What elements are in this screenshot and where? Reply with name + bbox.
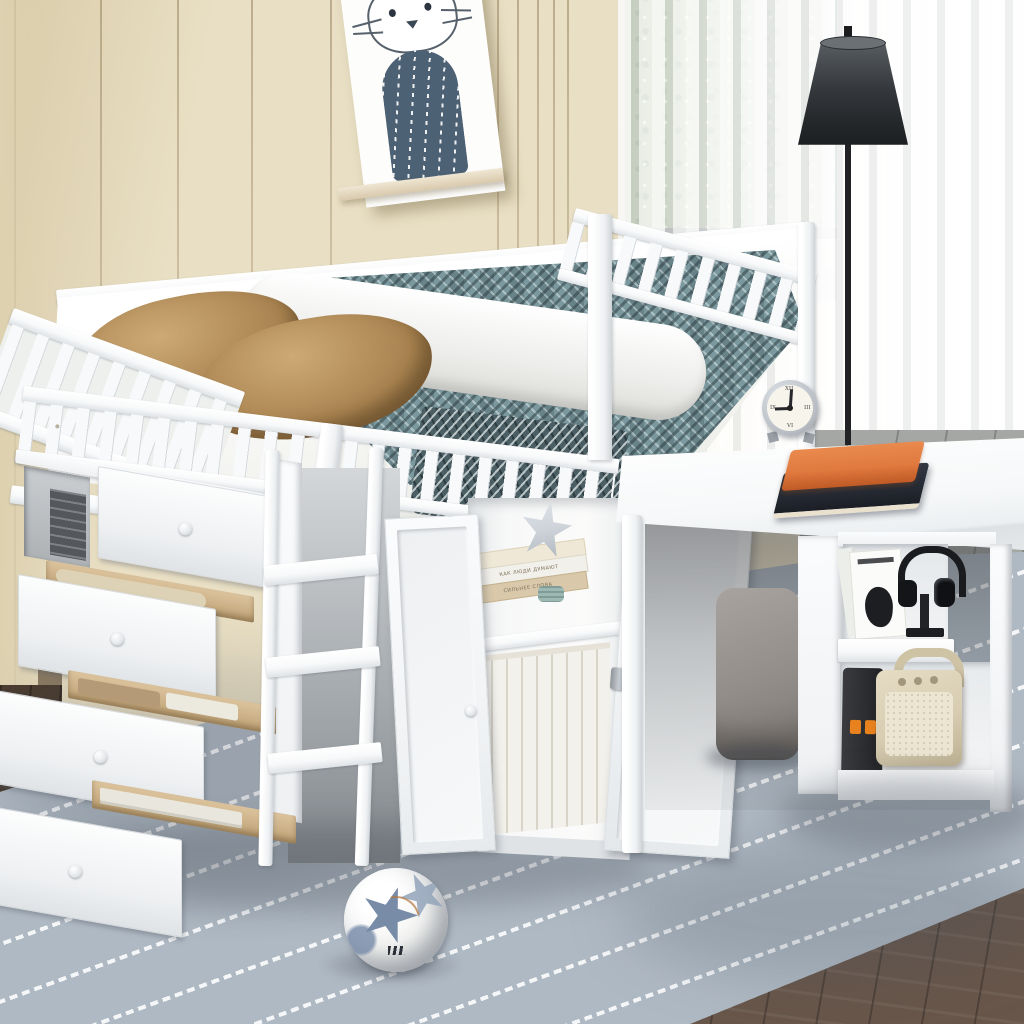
pouf [716,588,800,760]
headphone-stand [920,594,929,630]
power-bank-port [865,720,876,734]
headphone-stand-base [906,628,944,637]
speaker-knob [930,676,938,684]
clock-body: XII III VI IX [762,380,818,436]
headphones-earcup-icon [898,580,917,607]
speaker-knob [898,678,906,686]
desk-leg [622,515,642,853]
retro-speaker [876,648,962,766]
clock-numeral: III [804,405,811,411]
drawer-knob [179,522,192,535]
ball-brand-mark [388,946,405,955]
cat-body-icon [378,46,469,182]
magazine-portrait [864,586,895,628]
drawer-1 [98,466,272,589]
floor-lamp-pole [845,140,851,445]
clock-center-cap [787,405,793,411]
speaker-body [876,670,962,766]
room-scene: КАК ЛЮДИ ДУМАЮТ СИЛЬНЕЕ СЛОВА [0,0,1024,1024]
desk-shelf-unit [798,530,1013,815]
floor-lamp-shade-rim [820,36,886,50]
drawer-knob [111,633,124,646]
clock-face: XII III VI IX [767,385,813,431]
candle [538,586,564,602]
unit-left-board [798,536,844,794]
rug-shadow [620,840,1024,980]
speaker-knob [914,677,922,685]
alarm-clock: XII III VI IX [762,380,822,446]
cabinet-door-left [384,514,496,855]
bed-corner-post-front [588,214,612,460]
door-recessed-panel [397,526,483,842]
chest-cubby [24,466,90,568]
power-bank-port [850,720,861,734]
furniture-shadow [780,775,1024,850]
cat-nose-icon [406,20,419,29]
storage-box [50,489,86,561]
drawer-knob [69,865,82,878]
drawer-4-papers [100,787,242,828]
soccer-ball [344,868,448,972]
magazine-title-bar [858,557,894,564]
clock-numeral: VI [787,423,793,429]
clock-leg [803,432,815,444]
book-row [478,642,610,836]
drawer-3-cloth [166,692,238,721]
drawer-knob [94,750,107,763]
headphones-earcup-icon [934,578,955,607]
speaker-grille [885,692,953,756]
